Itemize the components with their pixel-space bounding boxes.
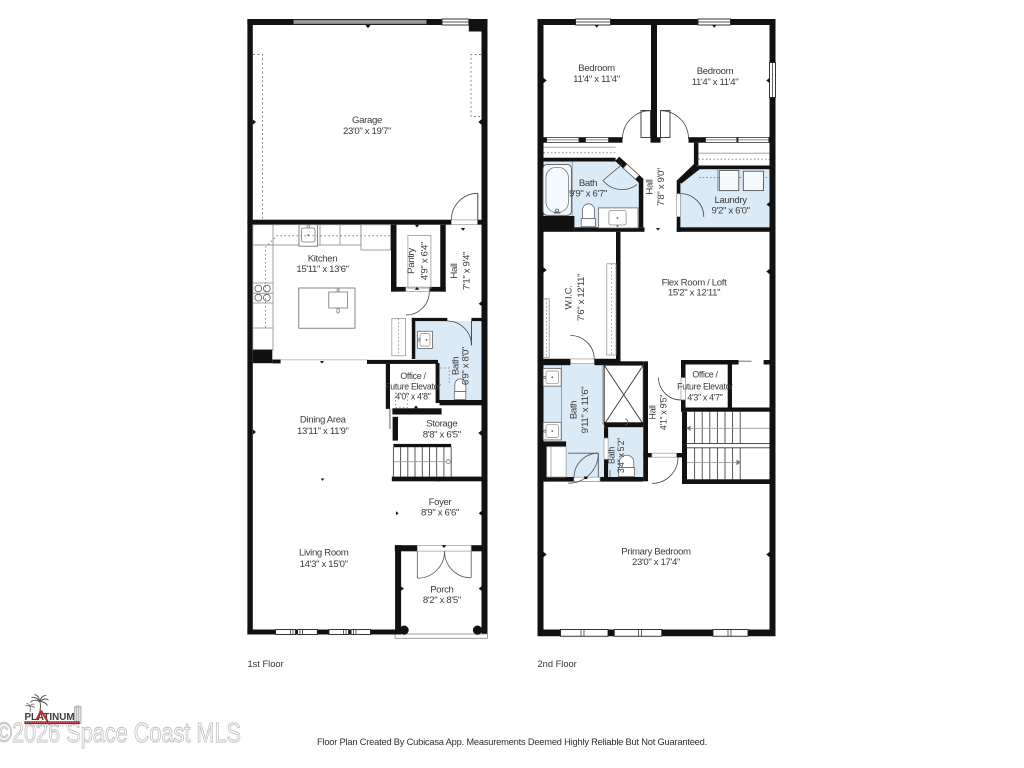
svg-text:7'1" x 9'4": 7'1" x 9'4"	[462, 252, 473, 290]
svg-text:Future Elevator: Future Elevator	[385, 382, 441, 392]
svg-text:Hall: Hall	[449, 263, 460, 278]
svg-text:Bedroom: Bedroom	[578, 63, 615, 74]
svg-text:Living Room: Living Room	[299, 548, 349, 559]
svg-text:8'9" x 6'6": 8'9" x 6'6"	[421, 508, 459, 519]
svg-text:11'4" x 11'4": 11'4" x 11'4"	[692, 77, 739, 88]
svg-text:6'9" x 8'0": 6'9" x 8'0"	[461, 347, 472, 385]
svg-text:4'3" x 4'7": 4'3" x 4'7"	[687, 393, 722, 403]
svg-text:Future Elevator: Future Elevator	[677, 382, 733, 392]
svg-text:4'0" x 4'8": 4'0" x 4'8"	[395, 392, 430, 402]
svg-text:Bedroom: Bedroom	[697, 66, 734, 77]
svg-text:Garage: Garage	[352, 115, 382, 126]
svg-text:3'4" x 5'2": 3'4" x 5'2"	[616, 438, 626, 473]
svg-text:1st Floor: 1st Floor	[248, 659, 284, 669]
svg-text:Laundry: Laundry	[714, 195, 747, 206]
svg-text:15'11" x 13'6": 15'11" x 13'6"	[296, 264, 348, 275]
svg-text:15'2" x 12'11": 15'2" x 12'11"	[668, 288, 720, 299]
svg-text:Office /: Office /	[692, 370, 718, 380]
svg-text:Storage: Storage	[426, 419, 457, 430]
svg-text:Bath: Bath	[607, 447, 617, 464]
svg-text:Office /: Office /	[400, 371, 426, 381]
svg-text:Porch: Porch	[430, 584, 453, 595]
svg-text:Hall: Hall	[648, 405, 658, 419]
svg-text:14'3" x 15'0": 14'3" x 15'0"	[300, 559, 348, 570]
svg-text:Kitchen: Kitchen	[308, 254, 338, 265]
svg-text:Dining Area: Dining Area	[300, 415, 347, 426]
svg-text:8'2" x 8'5": 8'2" x 8'5"	[423, 595, 461, 606]
svg-text:23'0" x 17'4": 23'0" x 17'4"	[632, 557, 680, 568]
svg-text:Bath: Bath	[579, 178, 597, 189]
svg-text:4'1" x 9'5": 4'1" x 9'5"	[658, 395, 668, 430]
svg-text:9'11" x 11'6": 9'11" x 11'6"	[580, 387, 591, 434]
svg-text:Pantry: Pantry	[406, 248, 417, 274]
svg-text:7'8" x 9'0": 7'8" x 9'0"	[656, 168, 667, 206]
svg-text:9'2" x 6'0": 9'2" x 6'0"	[712, 206, 750, 217]
svg-text:8'8" x 6'5": 8'8" x 6'5"	[423, 430, 461, 441]
svg-text:Primary Bedroom: Primary Bedroom	[621, 547, 691, 558]
svg-text:2nd Floor: 2nd Floor	[538, 659, 577, 669]
svg-text:W.I.C.: W.I.C.	[564, 285, 575, 309]
svg-text:Foyer: Foyer	[429, 497, 453, 508]
svg-text:4'9" x 6'4": 4'9" x 6'4"	[420, 242, 431, 280]
svg-text:Hall: Hall	[645, 179, 656, 194]
svg-text:Bath: Bath	[569, 401, 580, 419]
svg-text:11'4" x 11'4": 11'4" x 11'4"	[573, 74, 620, 85]
svg-text:7'6" x 12'11": 7'6" x 12'11"	[576, 274, 587, 321]
svg-text:23'0" x 19'7": 23'0" x 19'7"	[343, 126, 391, 137]
svg-text:9'9" x 6'7": 9'9" x 6'7"	[569, 188, 607, 199]
svg-text:13'11" x 11'9": 13'11" x 11'9"	[297, 426, 349, 437]
svg-text:Floor Plan Created By Cubicasa: Floor Plan Created By Cubicasa App. Meas…	[317, 737, 707, 747]
